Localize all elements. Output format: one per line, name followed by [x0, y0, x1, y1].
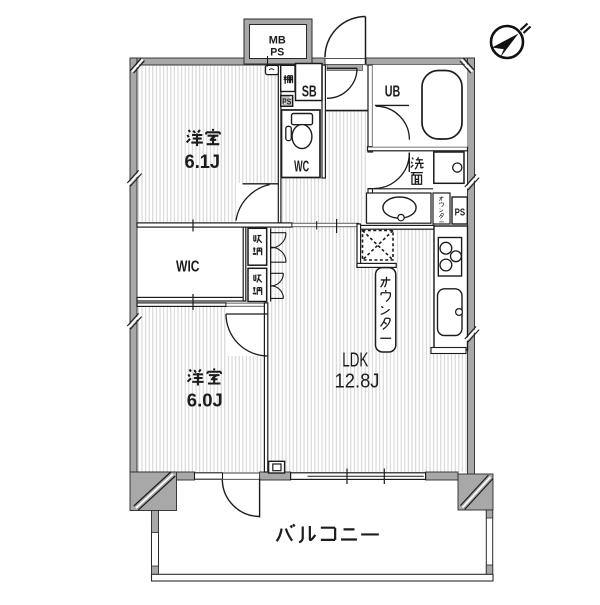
svg-text:WC: WC	[294, 159, 309, 176]
svg-text:LDK: LDK	[342, 350, 368, 372]
svg-text:6.0J: 6.0J	[187, 390, 223, 411]
svg-text:PS: PS	[270, 47, 284, 59]
svg-text:UB: UB	[385, 84, 401, 101]
svg-text:WIC: WIC	[176, 259, 200, 276]
svg-text:6.1J: 6.1J	[185, 151, 221, 173]
svg-text:MB: MB	[269, 35, 286, 47]
svg-text:PS: PS	[455, 207, 466, 219]
svg-text:12.8J: 12.8J	[335, 371, 380, 393]
svg-text:PS: PS	[282, 98, 292, 107]
svg-text:SB: SB	[302, 84, 317, 101]
